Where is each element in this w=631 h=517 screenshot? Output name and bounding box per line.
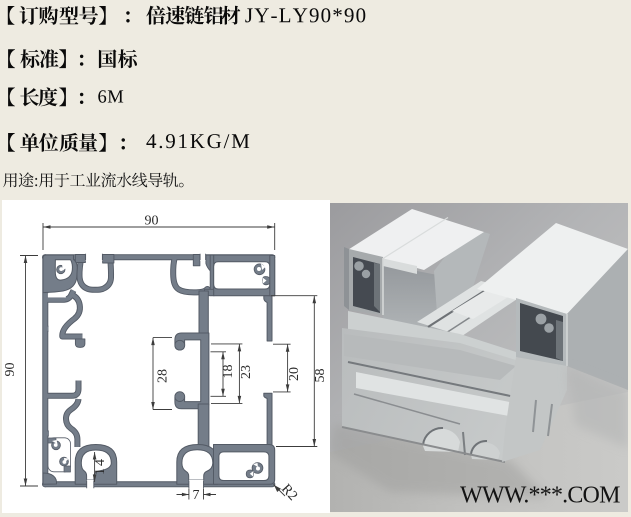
svg-text:90: 90 <box>145 214 159 229</box>
svg-text:23: 23 <box>239 365 254 379</box>
svg-text:14: 14 <box>93 457 108 475</box>
svg-text:28: 28 <box>156 369 171 383</box>
svg-text:7: 7 <box>193 488 200 503</box>
svg-text:90: 90 <box>3 363 18 377</box>
svg-text:18: 18 <box>221 365 236 379</box>
svg-text:20: 20 <box>287 367 302 381</box>
svg-text:WWW.***.COM: WWW.***.COM <box>460 483 620 509</box>
svg-text:58: 58 <box>313 369 328 383</box>
